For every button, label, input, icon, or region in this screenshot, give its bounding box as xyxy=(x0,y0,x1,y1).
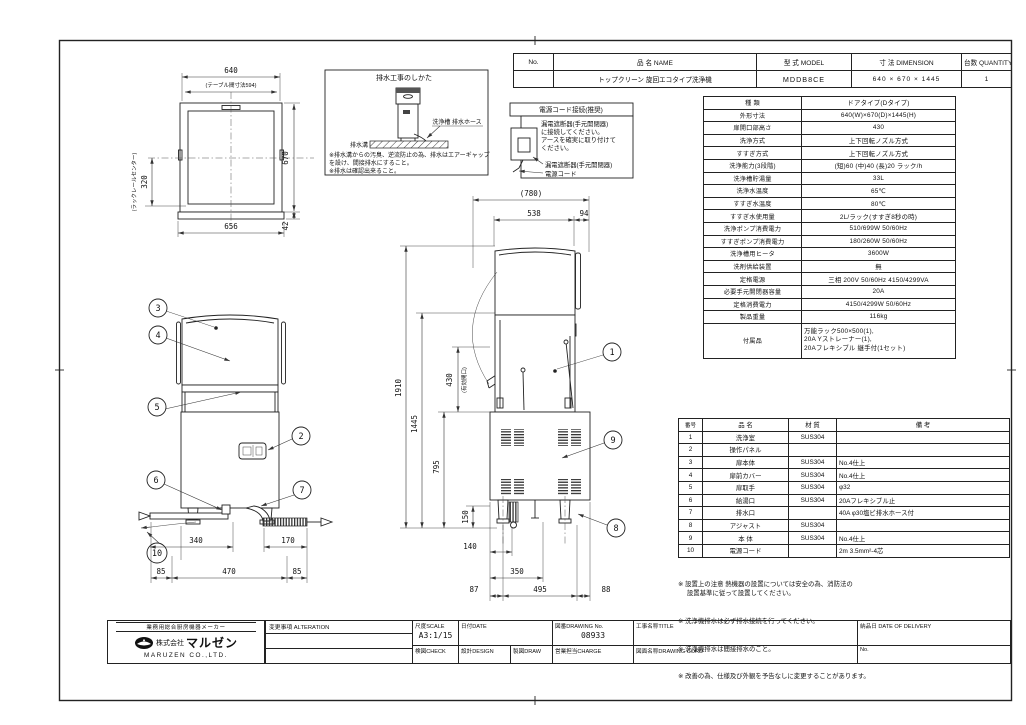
callout-9: 9 xyxy=(604,431,622,449)
charge-label: 営業担当CHARGE xyxy=(553,646,633,656)
maruzen-logo-icon xyxy=(134,636,154,650)
title-value-no xyxy=(514,71,554,88)
drain-ditch-label: 排水溝 xyxy=(350,141,368,149)
title-value-name: トップクリーン 旋回エコタイプ洗浄機 xyxy=(554,71,757,88)
spec-row: すすぎポンプ消費電力180/260W 50/60Hz xyxy=(704,235,956,248)
plan-dim-670: 670 xyxy=(281,151,290,165)
drain-note-2: を設け、間接排水にすること。 xyxy=(329,159,413,167)
drawing-cord-label: 図面名称DRAWING CORD xyxy=(634,646,857,656)
front-dim-470: 470 xyxy=(222,567,236,576)
title-table-header: No. 品 名 NAME 型 式 MODEL 寸 法 DIMENSION 台数 … xyxy=(514,54,1012,71)
title-value-quantity: 1 xyxy=(962,71,1012,88)
scale-label: 尺度SCALE xyxy=(413,621,458,631)
draw-label: 製図DRAW xyxy=(511,646,552,656)
charge-cell: 営業担当CHARGE xyxy=(552,646,633,663)
company-name: マルゼン xyxy=(186,634,238,651)
side-dim-795: 795 xyxy=(432,460,441,474)
front-dim-85-left: 85 xyxy=(156,567,165,576)
drawing-no-value: 08933 xyxy=(553,631,633,640)
drain-note-3: ※排水は確認出来ること。 xyxy=(329,167,400,175)
title-header-name: 品 名 NAME xyxy=(554,54,757,71)
spec-row: 扉開口部高さ430 xyxy=(704,122,956,135)
delivery-cell: 納品日 DATE OF DELIVERY xyxy=(857,621,1010,646)
spec-row: 必要手元開閉器容量20A xyxy=(704,285,956,298)
spec-row: すすぎ水温度80℃ xyxy=(704,197,956,210)
spec-row: 洗浄能力(3段階)(短)60 (中)40 (長)20 ラック/h xyxy=(704,159,956,172)
svg-text:2: 2 xyxy=(298,432,303,442)
parts-row: 10電源コード2m 3.5mm²-4芯 xyxy=(679,544,1010,557)
spec-row: 製品重量116kg xyxy=(704,311,956,324)
svg-text:7: 7 xyxy=(299,486,304,496)
spec-row: 洗浄水温度65℃ xyxy=(704,185,956,198)
power-line-1: 漏電遮断器(手元開閉器) xyxy=(541,119,608,128)
svg-text:8: 8 xyxy=(613,524,618,534)
svg-text:5: 5 xyxy=(154,403,159,413)
spec-row: 洗浄ポンプ消費電力510/699W 50/60Hz xyxy=(704,222,956,235)
plan-dim-320: 320 xyxy=(140,175,149,189)
side-dim-350: 350 xyxy=(510,567,524,576)
scale-value: A3:1/15 xyxy=(413,631,458,640)
drain-note-1: ※排水溝からの汚臭、逆流防止の為、排水はエアーギャップ xyxy=(329,151,490,159)
parts-row: 7排水口40A φ30塩ビ排水ホース付 xyxy=(679,507,1010,520)
parts-row: 4扉前カバーSUS304No.4仕上 xyxy=(679,469,1010,482)
alteration-row-empty xyxy=(266,634,412,649)
side-dim-94: 94 xyxy=(579,209,589,218)
spec-row: 洗剤供給装置無 xyxy=(704,260,956,273)
side-dim-495: 495 xyxy=(533,585,547,594)
svg-text:3: 3 xyxy=(155,304,160,314)
side-dim-430-note: (有効開口) xyxy=(460,367,468,393)
delivery-label: 納品日 DATE OF DELIVERY xyxy=(858,621,1010,631)
spec-row: 付属品万能ラック500×500(1), 20A Yストレーナー(1), 20Aフ… xyxy=(704,323,956,358)
side-dim-430: 430 xyxy=(445,373,454,387)
power-line-4: ください。 xyxy=(541,144,572,152)
svg-text:10: 10 xyxy=(152,549,162,559)
spec-row: 定格電源三相 200V 50/60Hz 4150/4299VA xyxy=(704,273,956,286)
draw-cell: 製図DRAW xyxy=(510,646,552,663)
date-label: 日付DATE xyxy=(459,621,552,631)
side-dim-1445: 1445 xyxy=(410,415,419,433)
side-dim-538: 538 xyxy=(527,209,541,218)
project-title-cell: 工事名称TITLE xyxy=(633,621,857,646)
title-header-model: 型 式 MODEL xyxy=(757,54,852,71)
note-line: ※ 設置上の注意 熱機器の設置については安全の為、消防法の 設置基準に従って設置… xyxy=(678,580,1010,599)
drain-detail-box: 排水工事のしかた 排水溝 洗浄槽 排水ホース ※排水溝からの汚臭、逆流防止の為、… xyxy=(325,70,490,175)
maker-logo-block: 業務用総合厨房機器メーカー 株式会社マルゼン MARUZEN CO.,LTD. xyxy=(107,620,265,664)
check-label: 検図CHECK xyxy=(413,646,458,656)
plan-dim-42: 42 xyxy=(281,221,290,230)
drawing-no-cell: 図番DRAWING No. 08933 xyxy=(552,621,633,646)
callout-8: 8 xyxy=(607,519,625,537)
side-dim-140: 140 xyxy=(463,542,477,551)
parts-row: 6給湯口SUS30420Aフレキシブル止 xyxy=(679,494,1010,507)
parts-row: 1洗浄室SUS304 xyxy=(679,431,1010,444)
check-cell: 検図CHECK xyxy=(413,646,458,663)
design-label: 設計DESIGN xyxy=(459,646,510,656)
side-dim-780: (780) xyxy=(520,189,543,198)
plan-view: 640 (テーブル間寸法594) 670 42 656 320 (ラックレールセ… xyxy=(130,66,314,237)
delivery-no-cell: No. xyxy=(857,646,1010,663)
maker-slogan: 業務用総合厨房機器メーカー xyxy=(116,622,256,632)
spec-table: 種 類ドアタイプ(Dタイプ) 外形寸法640(W)×670(D)×1445(H)… xyxy=(703,96,955,359)
title-header-no: No. xyxy=(514,54,554,71)
power-cord-label: 電源コード xyxy=(545,169,576,178)
drawing-no-label: 図番DRAWING No. xyxy=(553,621,633,631)
title-block-grid: 尺度SCALE A3:1/15 日付DATE 図番DRAWING No. 089… xyxy=(413,620,1011,664)
callout-6: 6 xyxy=(147,471,165,489)
drain-box-title: 排水工事のしかた xyxy=(376,73,432,82)
callout-3: 3 xyxy=(149,299,167,317)
parts-table: 番号 品 名 材 質 備 考 1洗浄室SUS304 2操作パネル 3扉本体SUS… xyxy=(678,418,1009,558)
spec-row: 種 類ドアタイプ(Dタイプ) xyxy=(704,97,956,110)
spec-row: 定格消費電力4150/4299W 50/60Hz xyxy=(704,298,956,311)
side-dim-87: 87 xyxy=(469,585,478,594)
plan-dim-table-span: (テーブル間寸法594) xyxy=(205,81,256,89)
parts-table-header: 番号 品 名 材 質 備 考 xyxy=(679,419,1010,432)
plan-dim-640: 640 xyxy=(224,66,238,75)
callout-4: 4 xyxy=(149,326,167,344)
side-view: 1 9 8 (780) 538 94 1910 1445 795 430 (有効… xyxy=(394,189,625,601)
title-table-row: トップクリーン 旋回エコタイプ洗浄機 MDDB8CE 640 × 670 × 1… xyxy=(514,71,1012,88)
power-breaker-label: 漏電遮断器(手元開閉器) xyxy=(545,160,612,169)
power-line-3: アースを確実に取り付けて xyxy=(541,135,616,144)
title-value-dimension: 640 × 670 × 1445 xyxy=(852,71,962,88)
parts-row: 8アジャストSUS304 xyxy=(679,519,1010,532)
parts-row: 9本 体SUS304No.4仕上 xyxy=(679,532,1010,545)
company-name-en: MARUZEN CO.,LTD. xyxy=(108,652,264,659)
delivery-no-label: No. xyxy=(858,646,1010,654)
side-dim-1910: 1910 xyxy=(394,378,403,397)
front-dim-170: 170 xyxy=(281,536,295,545)
title-header-quantity: 台数 QUANTITY xyxy=(962,54,1012,71)
power-box-title: 電源コード接続(推奨) xyxy=(539,105,603,114)
title-table: No. 品 名 NAME 型 式 MODEL 寸 法 DIMENSION 台数 … xyxy=(513,53,1011,88)
front-view: 3 4 5 2 6 7 10 340 170 85 470 85 xyxy=(139,299,332,583)
parts-row: 5扉取手SUS304φ32 xyxy=(679,481,1010,494)
spec-row: 洗浄方式上下回転ノズル方式 xyxy=(704,134,956,147)
drawing-cord-cell: 図面名称DRAWING CORD xyxy=(633,646,857,663)
company-prefix: 株式会社 xyxy=(156,638,184,648)
parts-row: 3扉本体SUS304No.4仕上 xyxy=(679,456,1010,469)
spec-row: すすぎ方式上下回転ノズル方式 xyxy=(704,147,956,160)
svg-text:9: 9 xyxy=(610,436,615,446)
plan-rack-center-label: (ラックレールセンター) xyxy=(130,153,138,212)
side-dim-150: 150 xyxy=(461,510,470,524)
title-value-model: MDDB8CE xyxy=(757,71,852,88)
title-header-dimension: 寸 法 DIMENSION xyxy=(852,54,962,71)
plan-dim-656: 656 xyxy=(224,222,238,231)
design-cell: 設計DESIGN xyxy=(458,646,510,663)
drawing-sheet: 640 (テーブル間寸法594) 670 42 656 320 (ラックレールセ… xyxy=(0,0,1026,725)
spec-row: 洗浄槽用ヒータ3600W xyxy=(704,248,956,261)
svg-text:1: 1 xyxy=(609,348,614,358)
alteration-label: 変更事項 ALTERATION xyxy=(266,621,412,634)
project-title-label: 工事名称TITLE xyxy=(634,621,857,631)
svg-text:4: 4 xyxy=(155,331,160,341)
spec-row: 洗浄槽貯湯量33L xyxy=(704,172,956,185)
power-line-2: に接続してください。 xyxy=(541,127,604,136)
callout-2: 2 xyxy=(292,427,310,445)
side-dim-88: 88 xyxy=(601,585,611,594)
front-dim-340: 340 xyxy=(189,536,203,545)
breaker-box-icon xyxy=(511,128,537,160)
drain-hose-label: 洗浄槽 排水ホース xyxy=(432,118,481,126)
spec-row: すすぎ水使用量2L/ラック(すすぎ8秒の時) xyxy=(704,210,956,223)
date-cell: 日付DATE xyxy=(458,621,552,646)
scale-cell: 尺度SCALE A3:1/15 xyxy=(413,621,458,646)
parts-row: 2操作パネル xyxy=(679,444,1010,457)
power-detail-box: 電源コード接続(推奨) 漏電遮断器(手元開閉器) に接続してください。 アースを… xyxy=(510,103,633,178)
svg-text:6: 6 xyxy=(153,476,158,486)
callout-5: 5 xyxy=(148,398,166,416)
alteration-block: 変更事項 ALTERATION xyxy=(265,620,413,664)
note-line: ※ 改善の為、仕様及び外観を予告なしに変更することがあります。 xyxy=(678,672,1010,681)
spec-row: 外形寸法640(W)×670(D)×1445(H) xyxy=(704,109,956,122)
callout-7: 7 xyxy=(293,481,311,499)
front-dim-85-right: 85 xyxy=(292,567,301,576)
callout-10: 10 xyxy=(147,543,167,563)
callout-1: 1 xyxy=(603,343,621,361)
